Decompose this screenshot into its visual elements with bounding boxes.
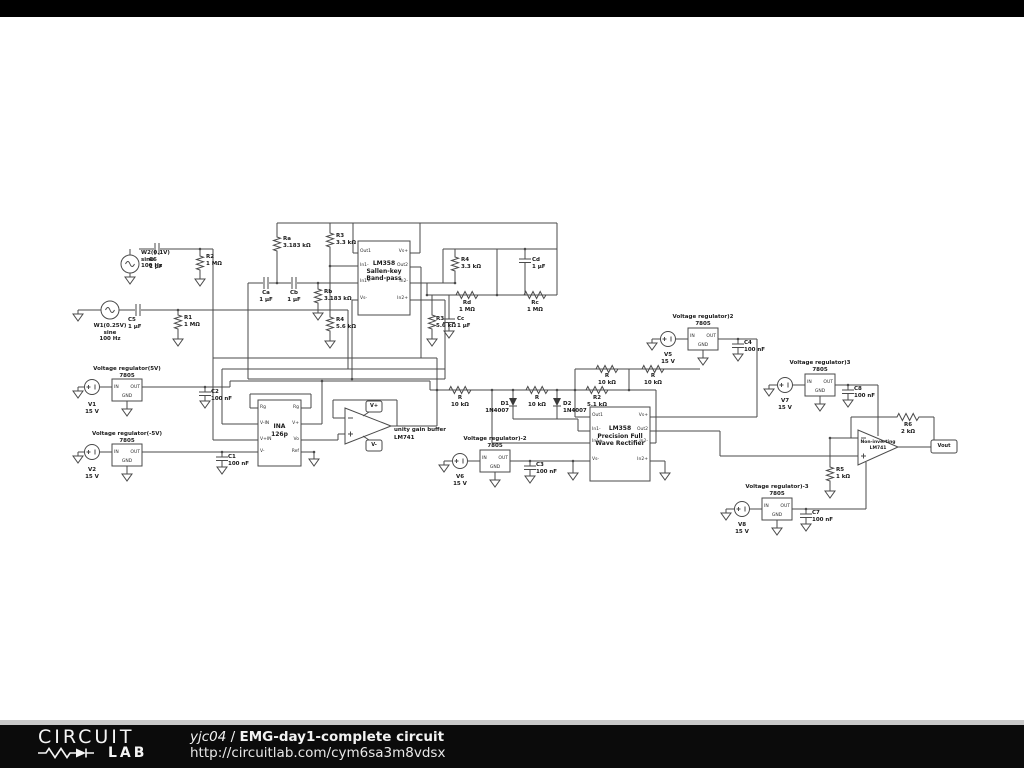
diode-D2-icon (553, 398, 561, 406)
logo-text-lab: LAB (108, 745, 147, 761)
pin-reg5-out: OUT (815, 380, 833, 385)
pin-reg4-in: IN (482, 456, 487, 461)
pin-rectifier-out1: Out1 (592, 413, 603, 418)
label-regulator5: Voltage regulator)3 7805 (780, 360, 860, 373)
pin-rectifier-vsp: Vs+ (618, 413, 648, 418)
pin-ina-rg-left: Rg (260, 405, 266, 410)
author-name: yjc04 (190, 729, 226, 745)
pin-bandpass-in1p: In1+ (360, 279, 371, 284)
source-V2-icon (85, 445, 100, 460)
label-V1: V1 15 V (78, 402, 106, 415)
label-Cb: Cb 1 µF (284, 290, 304, 303)
footer-bar: CIRCUIT LAB yjc04 / EMG-day1-complete ci… (0, 725, 1024, 768)
label-Rd: Rd 1 MΩ (452, 300, 482, 313)
pin-rectifier-vsn: Vs- (592, 457, 599, 462)
pin-reg1-out: OUT (122, 385, 140, 390)
title-separator: / (226, 729, 239, 745)
pin-reg3-in: IN (690, 334, 695, 339)
source-V6-icon (453, 454, 468, 469)
label-D2: D2 1N4007 (563, 401, 587, 414)
label-R3-stage2: R3 5.6 kΩ (436, 316, 456, 329)
label-R-feedback2: R 10 kΩ (638, 373, 668, 386)
label-C7: C7 100 nF (812, 510, 833, 523)
source-V8-icon (735, 502, 750, 517)
pin-rectifier-in1p: In1+ (592, 439, 603, 444)
label-V2: V2 15 V (78, 467, 106, 480)
source-W1-icon (101, 301, 119, 319)
pin-bandpass-vsn: Vs- (360, 296, 367, 301)
pin-ina-vp: V+ (273, 421, 299, 426)
noninverting-opamp-title: Non-inverting LM741 (857, 440, 899, 451)
footer-text: yjc04 / EMG-day1-complete circuit http:/… (190, 729, 445, 761)
pin-reg4-out: OUT (490, 456, 508, 461)
label-W1: W1(0.25V) sine 100 Hz (90, 323, 130, 343)
label-Cc: Cc 1 µF (457, 316, 471, 329)
buffer-opamp-title: unity gain buffer LM741 (394, 427, 448, 442)
diode-D1-icon (509, 398, 517, 406)
vminus-flag-label: V- (366, 442, 382, 448)
circuit-title-line: yjc04 / EMG-day1-complete circuit (190, 729, 445, 745)
label-Ra: Ra 3.183 kΩ (283, 236, 311, 249)
pin-ina-vo: Vo (273, 437, 299, 442)
pin-reg2-in: IN (114, 450, 119, 455)
label-R2: R2 1 MΩ (206, 254, 222, 267)
pin-ina-rg-right: Rg (273, 405, 299, 410)
pin-reg6-out: OUT (772, 504, 790, 509)
label-R-feedback1: R 10 kΩ (592, 373, 622, 386)
label-D1: D1 1N4007 (484, 401, 509, 414)
source-W2-icon (121, 255, 139, 273)
label-regulator2: Voltage regulator(-5V) 7805 (87, 431, 167, 444)
label-C3: C3 100 nF (536, 462, 557, 475)
vplus-flag-label: V+ (366, 403, 382, 409)
circuit-url: http://circuitlab.com/cym6sa3m8vdsx (190, 745, 445, 761)
pin-reg1-gnd: GND (112, 394, 142, 399)
label-C5: C5 1 µF (128, 317, 142, 330)
pin-bandpass-in2p: In2+ (382, 296, 408, 301)
pin-reg6-in: IN (764, 504, 769, 509)
label-R1: R1 1 MΩ (184, 315, 200, 328)
label-R5: R5 1 kΩ (836, 467, 850, 480)
schematic-canvas: W2(0.1V) sine 100 Hz C6 1 µF R2 1 MΩ W1(… (0, 17, 1024, 720)
source-V5-icon (661, 332, 676, 347)
pin-bandpass-out1: Out1 (360, 249, 371, 254)
label-V6: V6 15 V (446, 474, 474, 487)
label-Rb: Rb 3.183 kΩ (324, 289, 352, 302)
pin-rectifier-in2p: In2+ (618, 457, 648, 462)
label-V5: V5 15 V (654, 352, 682, 365)
label-regulator1: Voltage regulator(5V) 7805 (87, 366, 167, 379)
label-R-mid: R 10 kΩ (522, 395, 552, 408)
source-V1-icon (85, 380, 100, 395)
label-C4: C4 100 nF (744, 340, 765, 353)
label-Cd: Cd 1 µF (532, 257, 546, 270)
label-C2: C2 100 nF (211, 389, 232, 402)
pin-ina-vinp: V+IN (260, 437, 272, 442)
circuitlab-logo: CIRCUIT LAB (38, 728, 188, 761)
label-R6: R6 2 kΩ (893, 422, 923, 435)
label-regulator6: Voltage regulator)-3 7805 (737, 484, 817, 497)
label-Ca: Ca 1 µF (256, 290, 276, 303)
vout-flag-label: Vout (931, 443, 957, 449)
pin-bandpass-in2n: In2- (382, 279, 408, 284)
label-regulator3: Voltage regulator)2 7805 (663, 314, 743, 327)
top-black-bar (0, 0, 1024, 17)
pin-bandpass-vsp: Vs+ (382, 249, 408, 254)
label-Rc: Rc 1 MΩ (520, 300, 550, 313)
pin-ina-vn: V- (260, 449, 264, 454)
pin-reg4-gnd: GND (480, 465, 510, 470)
label-regulator4: Voltage regulator)-2 7805 (455, 436, 535, 449)
pin-reg5-in: IN (807, 380, 812, 385)
pin-ina-vinn: V-IN (260, 421, 269, 426)
label-V8: V8 15 V (728, 522, 756, 535)
pin-bandpass-out2: Out2 (382, 263, 408, 268)
circuit-title: EMG-day1-complete circuit (239, 729, 444, 745)
label-C6: C6 1 µF (149, 257, 163, 270)
pin-rectifier-in1n: In1- (592, 427, 601, 432)
pin-ina-ref: Ref (273, 449, 299, 454)
label-R-input: R 10 kΩ (445, 395, 475, 408)
pin-reg3-out: OUT (698, 334, 716, 339)
label-V7: V7 15 V (771, 398, 799, 411)
pin-reg1-in: IN (114, 385, 119, 390)
pin-bandpass-in1n: In1- (360, 263, 369, 268)
label-C1: C1 100 nF (228, 454, 249, 467)
source-symbols (85, 255, 793, 517)
buffer-opamp-triangle (345, 408, 391, 444)
label-R4-stage1: R4 5.6 kΩ (336, 317, 356, 330)
pin-reg3-gnd: GND (688, 343, 718, 348)
pin-rectifier-in2n: In2- (618, 439, 648, 444)
label-R3-stage1: R3 3.3 kΩ (336, 233, 356, 246)
logo-schematic-icon (38, 747, 106, 759)
pin-rectifier-out2: Out2 (618, 427, 648, 432)
pin-reg2-gnd: GND (112, 459, 142, 464)
circuitlab-share-image: W2(0.1V) sine 100 Hz C6 1 µF R2 1 MΩ W1(… (0, 0, 1024, 768)
label-R4-stage2: R4 3.3 kΩ (461, 257, 481, 270)
source-V7-icon (778, 378, 793, 393)
pin-reg5-gnd: GND (805, 389, 835, 394)
label-C8: C8 100 nF (854, 386, 875, 399)
pin-reg2-out: OUT (122, 450, 140, 455)
pin-reg6-gnd: GND (762, 513, 792, 518)
